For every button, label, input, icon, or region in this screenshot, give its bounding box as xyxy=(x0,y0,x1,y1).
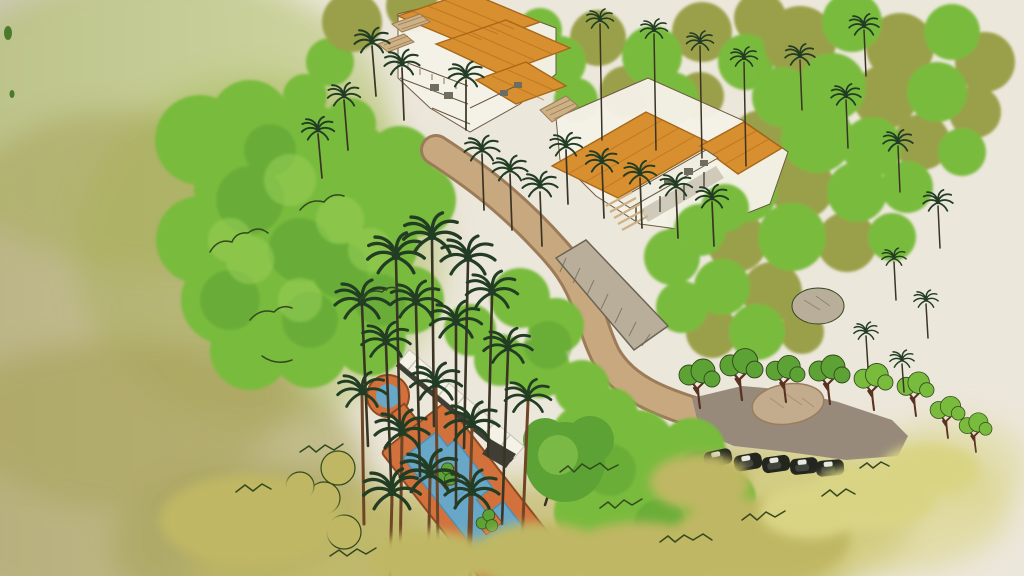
rendering-canvas xyxy=(0,0,1024,576)
car xyxy=(789,457,819,476)
boulder xyxy=(792,288,844,324)
site-rendering xyxy=(0,0,1024,576)
